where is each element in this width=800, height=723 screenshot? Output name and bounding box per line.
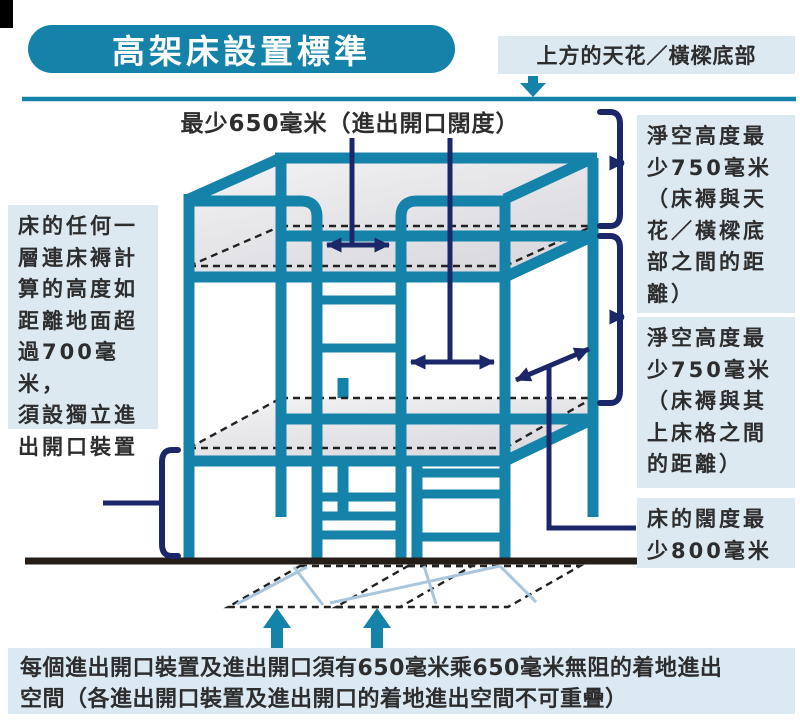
note-clearance-ceiling: 淨空高度最 少750毫米 （床褥與天 花／橫樑底 部之間的距 離） [637, 115, 795, 313]
note-bed-width: 床的闊度最 少800毫米 [637, 498, 795, 568]
bunk-bed-drawing [189, 153, 597, 562]
infographic-bunk-bed-standards: 高架床設置標準 上方的天花／橫樑底部 最少650毫米（進出開口闊度） 床的任何一… [0, 0, 800, 723]
page-title: 高架床設置標準 [28, 25, 455, 73]
note-floor-access-space: 每個進出開口裝置及進出開口須有650毫米乘650毫米無阻的着地進出 空間（各進出… [8, 648, 795, 714]
up-arrow-icon [363, 608, 391, 648]
ceiling-pointer-arrow-icon [520, 76, 546, 97]
opening-width-label: 最少650毫米（進出開口闊度） [120, 104, 580, 138]
bracket-lower-level [103, 450, 178, 556]
ceiling-label: 上方的天花／橫樑底部 [498, 36, 795, 74]
note-clearance-upper-bunk: 淨空高度最 少750毫米 （床褥與其 上床格之間 的距離） [637, 317, 795, 488]
lower-mattress [189, 398, 593, 464]
floor-access-arrows [263, 608, 391, 648]
note-independent-access: 床的任何一 層連床褥計 算的高度如 距離地面超 過700毫米， 須設獨立進 出開… [8, 205, 158, 429]
bracket-clearance-top [600, 112, 624, 226]
floor-access-area [228, 566, 580, 607]
up-arrow-icon [263, 608, 291, 648]
crop-artifact-mark [0, 0, 13, 28]
bracket-clearance-between [600, 236, 624, 403]
